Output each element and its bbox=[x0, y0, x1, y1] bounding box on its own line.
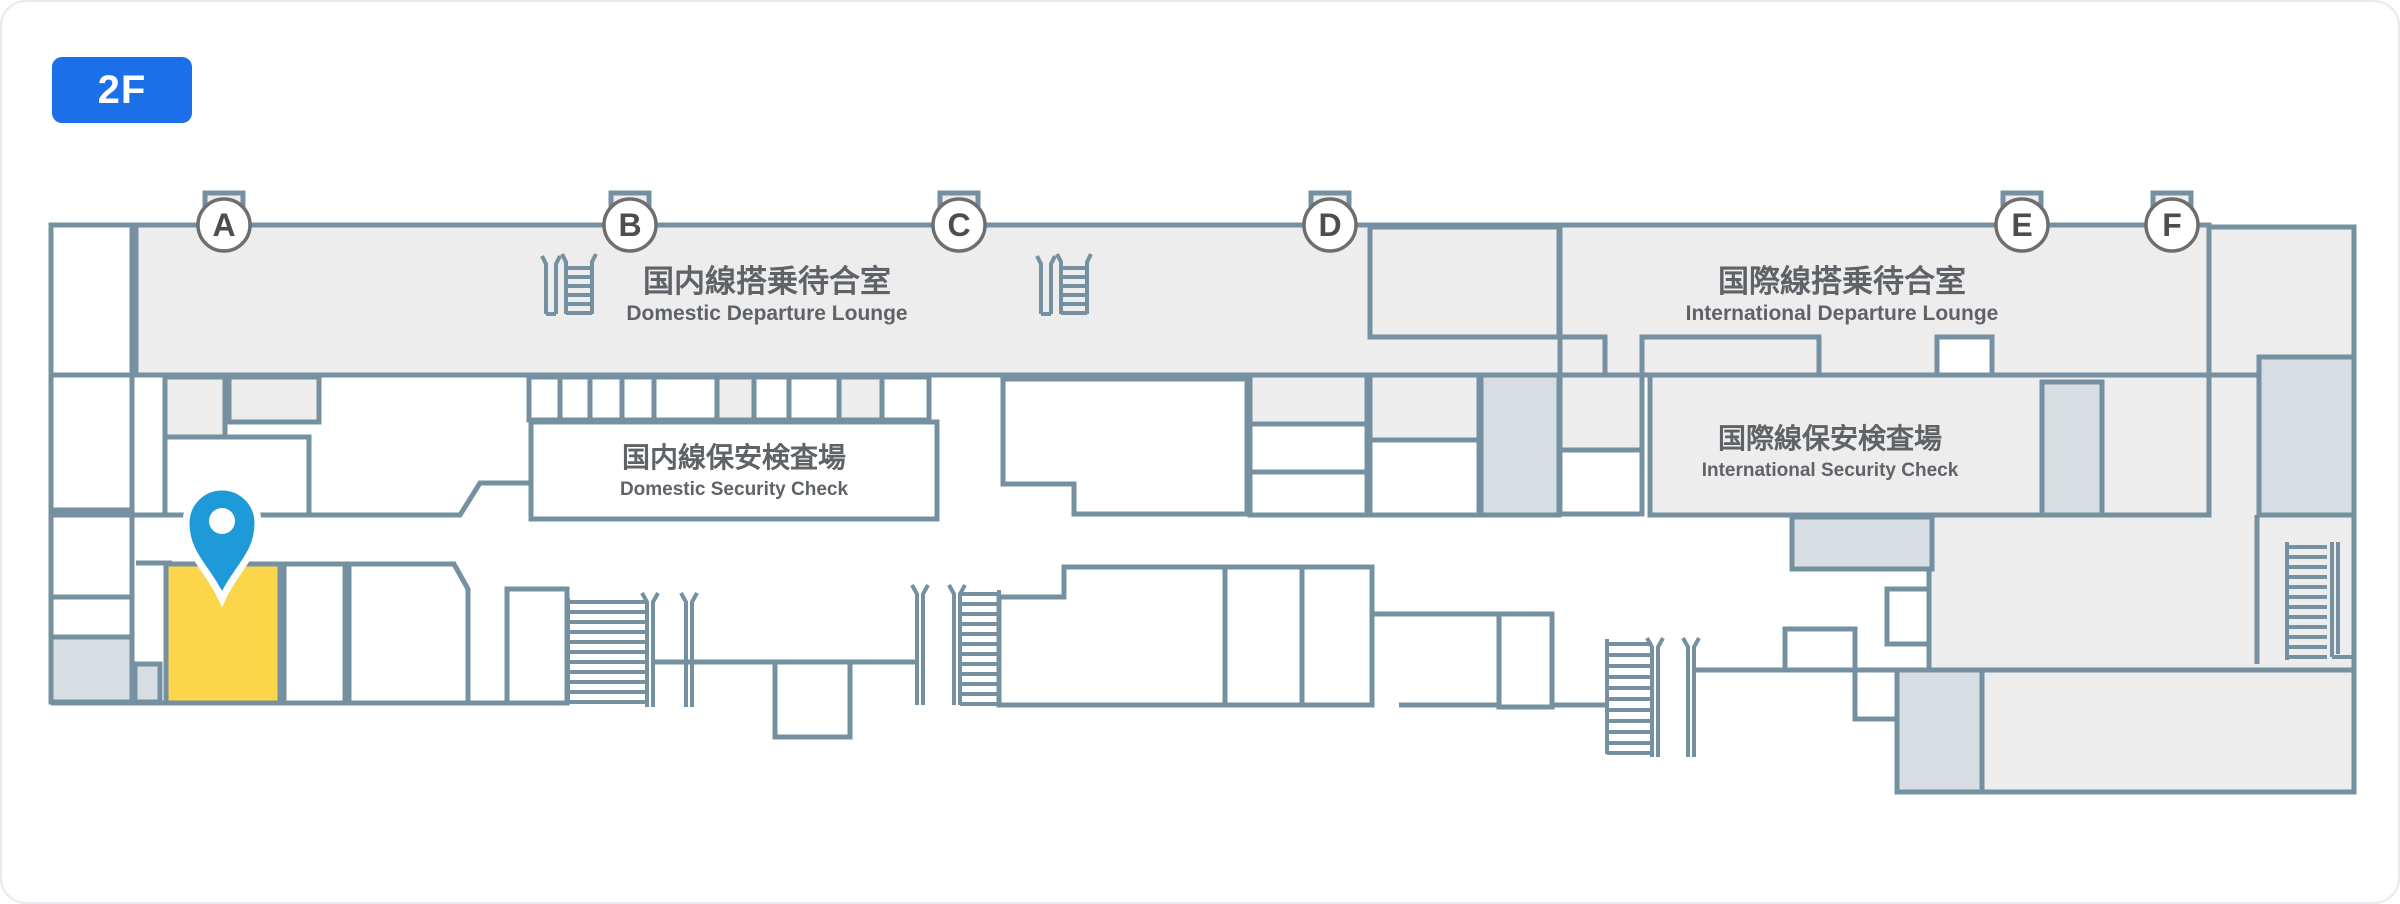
international-lounge-label-jp: 国際線搭乗待合室 bbox=[1718, 264, 1966, 299]
gate-marker-f-label: F bbox=[2162, 207, 2182, 243]
domestic-security-label-en: Domestic Security Check bbox=[620, 479, 849, 500]
gate-marker-e[interactable]: E bbox=[1996, 199, 2048, 251]
lounge-northeast-room bbox=[2209, 227, 2354, 375]
gate-marker-a-label: A bbox=[212, 207, 235, 243]
gate-marker-e-label: E bbox=[2011, 207, 2032, 243]
gate-marker-d[interactable]: D bbox=[1304, 199, 1356, 251]
gate-marker-b-label: B bbox=[618, 207, 641, 243]
gate-marker-c-label: C bbox=[947, 207, 970, 243]
lounge-inner-room bbox=[1370, 227, 1559, 337]
escalator-icon-east bbox=[1607, 638, 1699, 757]
domestic-departure-lounge bbox=[136, 225, 1560, 375]
escalator-icon-center bbox=[912, 585, 999, 705]
international-security-label-jp: 国際線保安検査場 bbox=[1718, 422, 1942, 454]
domestic-security-label-jp: 国内線保安検査場 bbox=[622, 441, 846, 473]
gate-marker-a[interactable]: A bbox=[198, 199, 250, 251]
gate-marker-b[interactable]: B bbox=[604, 199, 656, 251]
floor-map-svg: 国内線搭乗待合室 Domestic Departure Lounge 国内線保安… bbox=[2, 2, 2400, 904]
domestic-lounge-label-en: Domestic Departure Lounge bbox=[626, 302, 907, 325]
gate-marker-d-label: D bbox=[1318, 207, 1341, 243]
domestic-lounge-label-jp: 国内線搭乗待合室 bbox=[643, 264, 891, 299]
floor-map-card: 2F bbox=[0, 0, 2400, 904]
international-lounge-label-en: International Departure Lounge bbox=[1686, 302, 1999, 325]
gate-marker-f[interactable]: F bbox=[2146, 199, 2198, 251]
gate-bridge-stubs bbox=[205, 193, 2191, 227]
international-security-label-en: International Security Check bbox=[1702, 460, 1959, 481]
gate-marker-c[interactable]: C bbox=[933, 199, 985, 251]
escalator-icon-west bbox=[568, 593, 697, 707]
